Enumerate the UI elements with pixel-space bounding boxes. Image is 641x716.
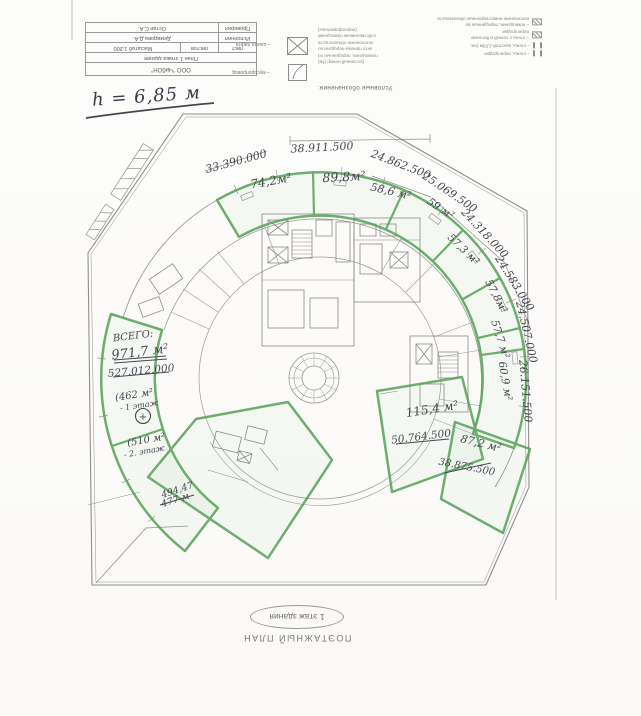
legend-right-list: – стены, перегородки – стены, высотой 2,…	[400, 16, 542, 56]
wall-height-symbol-icon	[533, 42, 542, 48]
mesh-wall-label-1: – стена с сеткой и бетоном	[471, 35, 529, 41]
invest-label-1: – помещения, переданные во	[437, 22, 529, 28]
legend-item-invest: – помещения, переданные во исполнение ин…	[400, 16, 542, 27]
doc-title: План 1 этажа здания	[86, 53, 257, 63]
price-room-2: 38.911.500	[290, 139, 354, 155]
garbage-chute-label: – мусоропровод	[218, 69, 284, 75]
legend-item-mesh-wall: – стена с сеткой и бетоном перегородки	[400, 29, 542, 40]
legend-item-walls: – стены, перегородки	[400, 50, 542, 56]
plus-mark: +	[139, 412, 147, 423]
legend-item-walls-height: – стены, высотой 2,53м (см.	[400, 42, 542, 48]
garbage-chute-icon	[288, 64, 307, 81]
wall-symbol-icon	[533, 50, 542, 56]
performed-name: Демидова Д.А.	[86, 33, 219, 43]
title-block: ООО "ЧибОН" План 1 этажа здания лист лис…	[85, 22, 257, 76]
boundary-hatch-strips	[86, 144, 153, 240]
invest-label: – помещения, переданные во исполнение ин…	[437, 16, 529, 27]
checked-label: Проверил	[219, 23, 257, 33]
wall-height-label: – стены, высотой 2,53м (см.	[470, 43, 530, 49]
legend-note-line: (условный номер (№)	[318, 58, 426, 64]
sheets-label: листов	[181, 43, 219, 53]
rotunda	[289, 353, 339, 403]
invest-symbol-icon	[532, 18, 542, 25]
plan-title: ПОЭТАЖНЫЙ ПЛАН	[236, 633, 358, 643]
elevator-shaft-icon	[287, 37, 308, 55]
price-room-1: 33.390.000	[204, 147, 268, 176]
wall-label: – стены, перегородки	[484, 51, 530, 57]
invest-label-2: исполнение инвестиционных обязательств	[437, 16, 529, 22]
legend-heading: Условные обозначения:	[296, 84, 414, 91]
scale-label: Масштаб 1:200	[86, 43, 181, 53]
title-block-table: ООО "ЧибОН" План 1 этажа здания лист лис…	[85, 22, 257, 76]
mesh-wall-symbol-icon	[532, 31, 542, 38]
mesh-wall-label: – стена с сеткой и бетоном перегородки	[471, 29, 529, 40]
floor-badge: 1 этаж здания	[250, 605, 344, 629]
scanned-floor-plan-sheet: 33.390.000 38.911.500 24.862.500 25.069.…	[0, 0, 641, 716]
checked-name: Остап С.А.	[86, 23, 219, 33]
elevator-shaft-label: – шахта лифта	[222, 41, 284, 47]
area-room-2: 89,8м²	[322, 168, 366, 185]
